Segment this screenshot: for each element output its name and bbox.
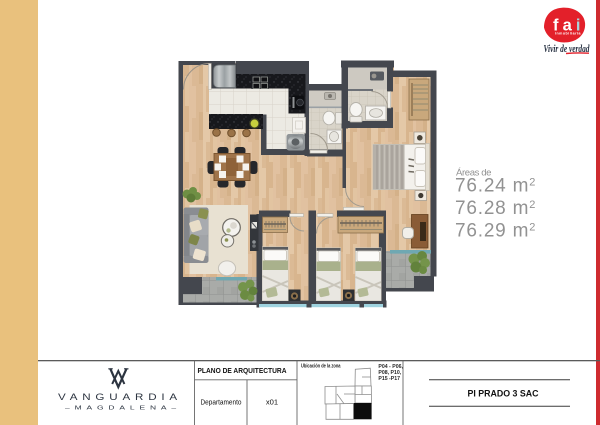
svg-text:PLANO DE ARQUITECTURA: PLANO DE ARQUITECTURA xyxy=(198,366,287,375)
svg-text:76.24 m2: 76.24 m2 xyxy=(455,176,536,197)
svg-text:Ubicación de la zona: Ubicación de la zona xyxy=(301,363,341,369)
svg-text:P15 -P17: P15 -P17 xyxy=(378,376,400,382)
svg-text:PI PRADO 3 SAC: PI PRADO 3 SAC xyxy=(468,387,539,398)
svg-text:76.29 m2: 76.29 m2 xyxy=(455,221,536,242)
svg-text:76.28 m2: 76.28 m2 xyxy=(455,198,536,219)
svg-text:x01: x01 xyxy=(266,397,278,406)
svg-text:VANGUARDIA: VANGUARDIA xyxy=(58,392,182,403)
svg-text:Departamento: Departamento xyxy=(201,397,242,406)
svg-text:–MAGDALENA–: –MAGDALENA– xyxy=(65,405,181,411)
svg-text:inmobiliaria: inmobiliaria xyxy=(555,31,582,35)
